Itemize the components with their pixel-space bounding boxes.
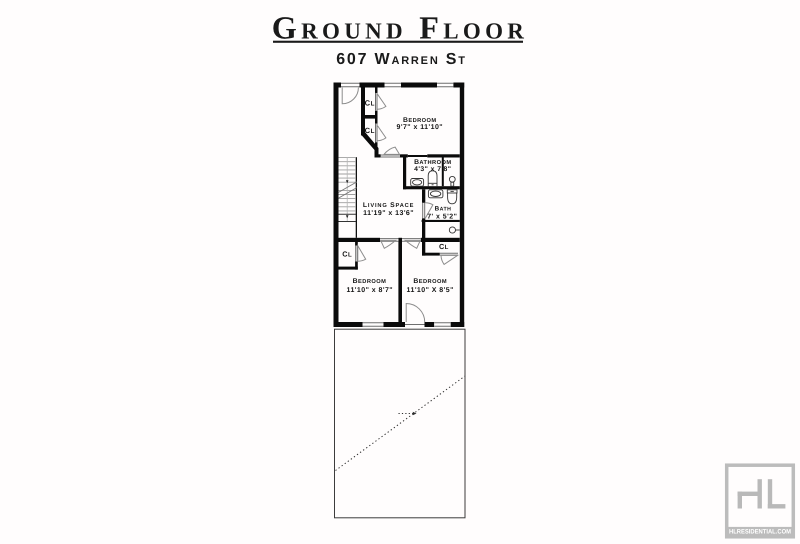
svg-text:BEDROOM: BEDROOM bbox=[353, 278, 387, 285]
svg-text:CL: CL bbox=[365, 126, 375, 135]
svg-text:BEDROOM: BEDROOM bbox=[403, 117, 437, 124]
svg-text:4'3" x 7'8": 4'3" x 7'8" bbox=[414, 166, 451, 173]
svg-text:CL: CL bbox=[365, 99, 375, 108]
svg-text:607 Warren St: 607 Warren St bbox=[336, 51, 467, 68]
svg-text:Ground Floor: Ground Floor bbox=[272, 10, 528, 46]
svg-text:CL: CL bbox=[439, 242, 449, 251]
svg-text:7' x 5'2": 7' x 5'2" bbox=[427, 213, 457, 220]
svg-text:11'19" x 13'6": 11'19" x 13'6" bbox=[363, 210, 414, 217]
svg-text:BATH: BATH bbox=[435, 205, 452, 212]
svg-text:BEDROOM: BEDROOM bbox=[413, 278, 447, 285]
svg-text:HLRESIDENTIAL.COM: HLRESIDENTIAL.COM bbox=[729, 529, 791, 536]
svg-text:LIVING SPACE: LIVING SPACE bbox=[363, 202, 414, 209]
svg-text:9'7" x 11'10": 9'7" x 11'10" bbox=[397, 124, 444, 131]
svg-text:11'10" x 8'7": 11'10" x 8'7" bbox=[347, 287, 394, 294]
svg-text:11'10" X 8'5": 11'10" X 8'5" bbox=[407, 287, 454, 294]
svg-text:CL: CL bbox=[342, 249, 352, 258]
